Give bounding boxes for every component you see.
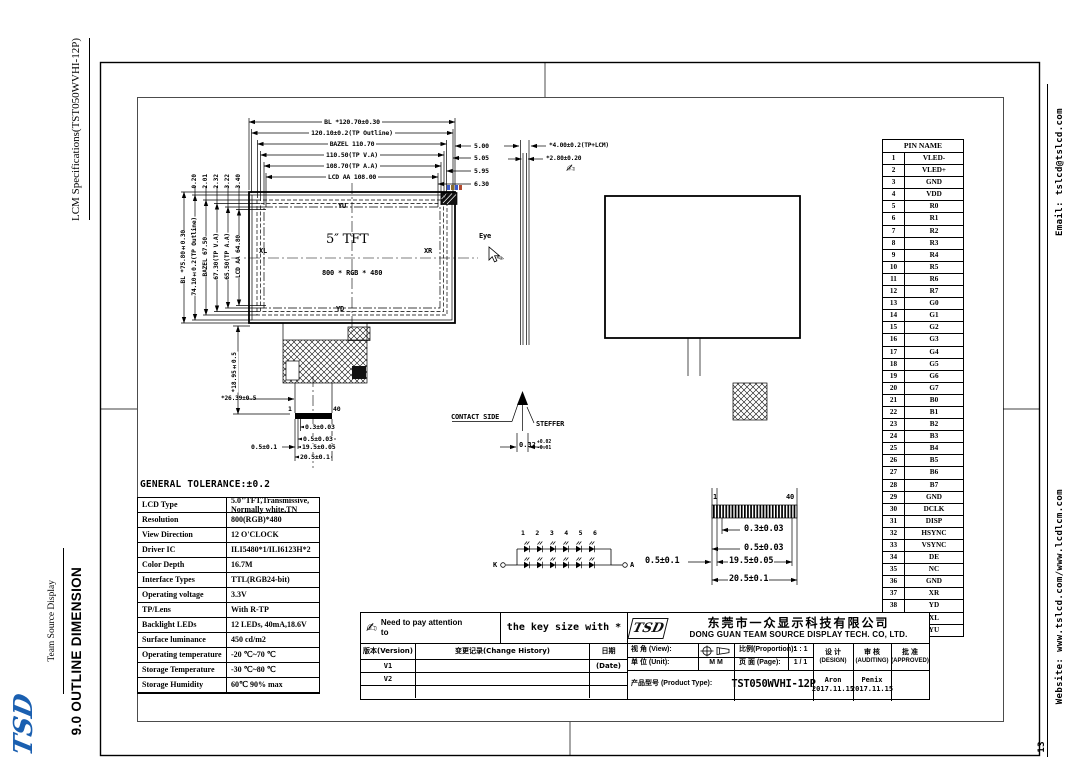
pin-name: B6 — [905, 467, 963, 478]
dim-top-6: LCD AA 108.00 — [252, 174, 452, 181]
spec-row: Operating temperature -20 ℃~70 ℃ — [138, 648, 319, 663]
pin-row: 3 GND — [883, 177, 963, 189]
spec-label: Operating temperature — [138, 648, 227, 662]
spec-value: 16.7M — [227, 558, 319, 572]
title-block-right: TSD 东莞市一众显示科技有限公司 DONG GUAN TEAM SOURCE … — [628, 613, 929, 699]
date-v2 — [590, 673, 627, 685]
company-row: TSD 东莞市一众显示科技有限公司 DONG GUAN TEAM SOURCE … — [628, 613, 929, 644]
product-value: TST050WVHI-12P — [734, 670, 813, 699]
led-cathode-label: K — [493, 562, 497, 570]
pin-row: 38 YD — [883, 600, 963, 612]
side-dim-total: *4.00±0.2(TP+LCM) — [549, 143, 609, 150]
pin-name: B0 — [905, 395, 963, 406]
pin-row: 8 R3 — [883, 238, 963, 250]
pin-number: 34 — [883, 552, 905, 563]
pin-row: 10 R5 — [883, 262, 963, 274]
dim-top-2: 120.10±0.2(TP Outline) — [252, 130, 452, 137]
fpc-pin40-label: 40 — [333, 406, 340, 413]
pin-row: 37 XR — [883, 588, 963, 600]
led-anode-label: A — [630, 562, 634, 570]
led-number: 1 — [521, 530, 525, 537]
title-block: ✍ Need to pay attention to the key size … — [360, 612, 930, 700]
contact-side-label: CONTACT SIDE — [451, 414, 499, 422]
pin-row: 11 R6 — [883, 274, 963, 286]
pin-row: 30 DCLK — [883, 504, 963, 516]
spec-value: 450 cd/m2 — [227, 633, 319, 647]
section-title-vertical: 9.0 OUTLINE DIMENSION — [64, 538, 90, 764]
pin-number: 3 — [883, 177, 905, 188]
led-number: 6 — [593, 530, 597, 537]
history-col-header: 变更记录(Change History) — [416, 644, 590, 659]
pin-row: 34 DE — [883, 552, 963, 564]
pin-row: 33 VSYNC — [883, 540, 963, 552]
pin-number: 4 — [883, 189, 905, 200]
pin-name: B5 — [905, 455, 963, 466]
pin-name: DE — [905, 552, 963, 563]
pin-row: 22 B1 — [883, 407, 963, 419]
product-label: 产品型号 (Product Type): — [628, 670, 737, 699]
pin-row: 4 VDD — [883, 189, 963, 201]
spec-value: TTL(RGB24-bit) — [227, 573, 319, 587]
detail-margin: 0.5±0.1 — [645, 557, 679, 566]
pin-number: 19 — [883, 371, 905, 382]
version-header-row: 版本(Version) 变更记录(Change History) 日期(Date… — [361, 644, 627, 660]
gap-top-2: 2.01 — [201, 154, 211, 188]
led-number: 3 — [550, 530, 554, 537]
page-number-wrap: 13 — [1036, 736, 1048, 758]
pin-name: B1 — [905, 407, 963, 418]
title-block-left: ✍ Need to pay attention to the key size … — [361, 613, 628, 699]
detail-pin1: 1 — [713, 494, 717, 502]
spec-value: -20 ℃~70 ℃ — [227, 648, 319, 662]
thickness-value: 0.32 — [519, 442, 536, 449]
dim-left-4: 67.30(TP V.A) — [212, 190, 222, 323]
pin-row: 32 HSYNC — [883, 528, 963, 540]
pin-name: GND — [905, 576, 963, 587]
unit-label: 单 位 (Unit): — [628, 657, 701, 670]
spec-row: Operating voltage 3.3V — [138, 588, 319, 603]
panel-size-label: 5″ TFT — [326, 233, 368, 246]
pin-row: 24 B3 — [883, 431, 963, 443]
pin-number: 17 — [883, 347, 905, 358]
detail-pinw: 0.5±0.03 — [744, 544, 783, 553]
spec-row: Backlight LEDs 12 LEDs, 40mA,18.6V — [138, 618, 319, 633]
led-circuit — [501, 542, 628, 569]
fpc-span-dim: 19.5±0.05 — [301, 444, 336, 451]
approve-label: 批 准 — [902, 649, 918, 657]
spec-row: Color Depth 16.7M — [138, 558, 319, 573]
tol-minus: -0.01 — [537, 446, 551, 452]
fpc-height-dim: *18.95±0.5 — [232, 352, 238, 393]
pin-name: HSYNC — [905, 528, 963, 539]
pin-name: G6 — [905, 371, 963, 382]
spec-row: View Direction 12 O'CLOCK — [138, 528, 319, 543]
spec-value: 3.3V — [227, 588, 319, 602]
pin-number: 26 — [883, 455, 905, 466]
brand-text: Team Source Display — [48, 580, 58, 662]
page-label: 页 面 (Page): — [736, 657, 791, 670]
pin-row: 23 B2 — [883, 419, 963, 431]
detail-span: 19.5±0.05 — [728, 557, 774, 566]
unit-value: M M — [698, 657, 734, 670]
spec-value: 12 LEDs, 40mA,18.6V — [227, 618, 319, 632]
dim-top-3: BAZEL 110.70 — [252, 141, 452, 148]
panel-label-yu: YU — [338, 203, 346, 211]
led-number: 2 — [535, 530, 539, 537]
spec-label: Resolution — [138, 513, 227, 527]
pin-name: VSYNC — [905, 540, 963, 551]
datasheet-page: { "page": { "number": "13" }, "sidebar_l… — [0, 0, 1088, 772]
dim-gap-4: 6.30 — [474, 181, 489, 188]
spec-row: Interface Types TTL(RGB24-bit) — [138, 573, 319, 588]
version-v1: V1 — [361, 660, 416, 672]
spec-table: LCD Type 5.0"TFT,Transmissive, Normally … — [137, 497, 320, 694]
version-row-v1: V1 — [361, 660, 627, 673]
date-empty — [590, 686, 627, 698]
pin-number: 10 — [883, 262, 905, 273]
spec-row: TP/Lens With R-TP — [138, 603, 319, 618]
pin-number: 24 — [883, 431, 905, 442]
spec-label: Backlight LEDs — [138, 618, 227, 632]
pin-number: 38 — [883, 600, 905, 611]
pin-row: 9 R4 — [883, 250, 963, 262]
pin-number: 28 — [883, 480, 905, 491]
audit-label: 审 核 — [864, 649, 880, 657]
pin-row: 27 B6 — [883, 467, 963, 479]
tsd-logo-text: TSD — [11, 692, 37, 758]
dim-left-1: BL *75.80±0.30 — [179, 190, 189, 323]
spec-value: 800(RGB)*480 — [227, 513, 319, 527]
side-dim-lcm: *2.80±0.20 — [546, 156, 581, 163]
attention-row: ✍ Need to pay attention to the key size … — [361, 613, 627, 644]
email-vertical: Email: tslcd@tslcd.com — [1052, 86, 1068, 258]
stiffener-label: STEFFER — [536, 421, 564, 429]
proportion-label: 比例(Proportion): — [736, 644, 791, 657]
attention-text: Need to pay attention to — [381, 618, 465, 638]
history-empty — [416, 686, 590, 698]
page-number: 13 — [1038, 741, 1047, 753]
pin-number: 5 — [883, 201, 905, 212]
pin-row: 2 VLED+ — [883, 165, 963, 177]
dim-left-3: BAZEL 67.50 — [201, 190, 211, 323]
pin-number: 12 — [883, 286, 905, 297]
company-names: 东莞市一众显示科技有限公司 DONG GUAN TEAM SOURCE DISP… — [668, 616, 929, 640]
pin-row: 18 G5 — [883, 359, 963, 371]
hand-note-icon: ✍ — [566, 162, 575, 175]
pin-name: R7 — [905, 286, 963, 297]
spec-value: -30 ℃~80 ℃ — [227, 663, 319, 677]
audit-sub: (AUDITING) — [856, 658, 889, 665]
key-note-text: the key size with * — [507, 623, 621, 633]
pin-name: DCLK — [905, 504, 963, 515]
thickness-tolerance: +0.02 -0.01 — [537, 440, 551, 451]
panel-resolution-label: 800 * RGB * 480 — [322, 270, 382, 278]
company-logo-text: TSD — [627, 618, 669, 639]
spec-label: Color Depth — [138, 558, 227, 572]
rear-view — [605, 196, 800, 420]
dim-left-6: LCD AA 64.80 — [234, 190, 244, 323]
dim-top-1: BL *120.70±0.30 — [252, 119, 452, 126]
spec-row: Storage Humidity 60℃ 90% max — [138, 678, 319, 693]
pin-name: B2 — [905, 419, 963, 430]
pin-name: YD — [905, 600, 963, 611]
spec-row: Storage Temperature -30 ℃~80 ℃ — [138, 663, 319, 678]
brand-vertical: Team Source Display — [45, 550, 61, 692]
fpc-total-dim: 20.5±0.1 — [299, 454, 331, 461]
pin-row: 25 B4 — [883, 443, 963, 455]
dim-top-4: 110.50(TP V.A) — [252, 152, 452, 159]
dim-left-2: 74.10±0.2(TP Outline) — [190, 190, 200, 323]
pin-row: 6 R1 — [883, 213, 963, 225]
spec-row: Driver IC ILI5480*1/ILI6123H*2 — [138, 543, 319, 558]
pin-table: PIN NAME 1 VLED- 2 VLED+ 3 GND 4 VDD 5 R… — [882, 139, 964, 637]
pin-name: R5 — [905, 262, 963, 273]
spec-label: View Direction — [138, 528, 227, 542]
pin-name: R2 — [905, 226, 963, 237]
gap-top-4: 3.22 — [223, 154, 233, 188]
audit-signature: Penix 2017.11.15 — [853, 670, 891, 699]
pin-number: 23 — [883, 419, 905, 430]
pin-name: GND — [905, 177, 963, 188]
pin-number: 8 — [883, 238, 905, 249]
pin-name: NC — [905, 564, 963, 575]
pin-row: 5 R0 — [883, 201, 963, 213]
fpc-height-dim-wrap: *18.95±0.5 — [230, 330, 240, 414]
pin-row: 13 G0 — [883, 298, 963, 310]
pin-number: 20 — [883, 383, 905, 394]
pin-number: 7 — [883, 226, 905, 237]
pin-row: 17 G4 — [883, 347, 963, 359]
spec-value: 5.0"TFT,Transmissive, Normally white,TN — [227, 498, 319, 512]
spec-label: Driver IC — [138, 543, 227, 557]
pin-number: 1 — [883, 153, 905, 164]
company-name-en: DONG GUAN TEAM SOURCE DISPLAY TECH. CO, … — [690, 630, 908, 640]
company-name-cn: 东莞市一众显示科技有限公司 — [707, 616, 889, 630]
design-sub: (DESIGN) — [820, 658, 847, 665]
spec-label: Storage Temperature — [138, 663, 227, 677]
spec-label: Operating voltage — [138, 588, 227, 602]
pin-number: 31 — [883, 516, 905, 527]
company-logo: TSD — [628, 618, 668, 639]
spec-label: Surface luminance — [138, 633, 227, 647]
pin-number: 35 — [883, 564, 905, 575]
pin-number: 2 — [883, 165, 905, 176]
pin-number: 15 — [883, 322, 905, 333]
email-text: Email: tslcd@tslcd.com — [1056, 108, 1065, 236]
key-note-cell: the key size with * — [501, 613, 627, 643]
pin-number: 30 — [883, 504, 905, 515]
gap-top-3: 2.32 — [212, 154, 222, 188]
pin-number: 6 — [883, 213, 905, 224]
audit-name: Penix — [861, 676, 882, 684]
design-header: 设 计 (DESIGN) — [813, 644, 853, 670]
spec-row: Surface luminance 450 cd/m2 — [138, 633, 319, 648]
panel-label-xr: XR — [424, 248, 432, 256]
spec-label: TP/Lens — [138, 603, 227, 617]
dim-gap-1: 5.00 — [474, 143, 489, 150]
pin-name: R3 — [905, 238, 963, 249]
detail-pitch: 0.3±0.03 — [744, 525, 783, 534]
pin-row: 19 G6 — [883, 371, 963, 383]
pin-number: 36 — [883, 576, 905, 587]
pin-name: R1 — [905, 213, 963, 224]
right-sidebar-rule — [1047, 84, 1048, 757]
pin-number: 27 — [883, 467, 905, 478]
gap-top-1: 0.20 — [190, 154, 200, 188]
audit-header: 审 核 (AUDITING) — [853, 644, 891, 670]
version-row-empty — [361, 686, 627, 698]
spec-value: 60℃ 90% max — [227, 678, 319, 692]
pin-number: 9 — [883, 250, 905, 261]
pin-name: G1 — [905, 310, 963, 321]
pin-row: 26 B5 — [883, 455, 963, 467]
pin-name: VLED- — [905, 153, 963, 164]
design-label: 设 计 — [825, 649, 841, 657]
pin-name: G4 — [905, 347, 963, 358]
projection-symbol — [698, 644, 734, 657]
pin-number: 25 — [883, 443, 905, 454]
approve-sub: (APPROVED) — [891, 658, 929, 665]
pin-name: VDD — [905, 189, 963, 200]
pin-name: G2 — [905, 322, 963, 333]
led-number: 5 — [579, 530, 583, 537]
pin-row: 36 GND — [883, 576, 963, 588]
spec-value: With R-TP — [227, 603, 319, 617]
pin-row: 20 G7 — [883, 383, 963, 395]
page-value: 1 / 1 — [788, 657, 813, 670]
pin-row: 14 G1 — [883, 310, 963, 322]
pin-name: R6 — [905, 274, 963, 285]
pin-name: B3 — [905, 431, 963, 442]
pin-row: 15 G2 — [883, 322, 963, 334]
fpc-margin-dim: 0.5±0.1 — [251, 444, 277, 451]
pin-row: 31 DISP — [883, 516, 963, 528]
pin-number: 33 — [883, 540, 905, 551]
pin-row: 12 R7 — [883, 286, 963, 298]
pin-number: 21 — [883, 395, 905, 406]
section-title: 9.0 OUTLINE DIMENSION — [70, 567, 84, 735]
spec-label: Interface Types — [138, 573, 227, 587]
pin-row: 21 B0 — [883, 395, 963, 407]
spec-label: LCD Type — [138, 498, 227, 512]
pin-number: 29 — [883, 492, 905, 503]
audit-date: 2017.11.15 — [851, 685, 893, 693]
pin-number: 13 — [883, 298, 905, 309]
tsd-logo: TSD — [2, 686, 46, 762]
gap-top-5: 3.40 — [234, 154, 244, 188]
dim-top-5: 108.70(TP A.A) — [252, 163, 452, 170]
history-v1 — [416, 660, 590, 672]
dim-left-5: 65.50(TP A.A) — [223, 190, 233, 323]
fpc-pin1-label: 1 — [288, 406, 292, 413]
pin-name: B4 — [905, 443, 963, 454]
corner-note-icon — [447, 185, 462, 190]
pin-name: VLED+ — [905, 165, 963, 176]
spec-value: 12 O'CLOCK — [227, 528, 319, 542]
pin-row: 29 GND — [883, 492, 963, 504]
pin-number: 11 — [883, 274, 905, 285]
side-view — [452, 140, 546, 452]
website-vertical: Website: www.tslcd.com/www.lcdlcm.com — [1052, 434, 1068, 760]
fpc-pinw-dim: 0.5±0.03 — [302, 436, 334, 443]
attention-cell: ✍ Need to pay attention to — [361, 613, 501, 643]
pin-name: XR — [905, 588, 963, 599]
pin-name: G5 — [905, 359, 963, 370]
pin-number: 18 — [883, 359, 905, 370]
detail-total: 20.5±0.1 — [728, 575, 769, 584]
pin-name: G7 — [905, 383, 963, 394]
pin-number: 32 — [883, 528, 905, 539]
design-signature: Aron 2017.11.15 — [813, 670, 853, 699]
general-tolerance-title: GENERAL TOLERANCE:±0.2 — [140, 480, 270, 490]
spec-label: Storage Humidity — [138, 678, 227, 692]
doc-title-underline — [89, 38, 90, 220]
pin-number: 22 — [883, 407, 905, 418]
version-col-header: 版本(Version) — [361, 644, 416, 659]
pin-row: 1 VLED- — [883, 153, 963, 165]
website-text: Website: www.tslcd.com/www.lcdlcm.com — [1056, 489, 1065, 704]
pin-row: 35 NC — [883, 564, 963, 576]
proportion-value: 1 : 1 — [788, 644, 813, 657]
date-col-header: 日期(Date) — [590, 644, 627, 659]
date-v1 — [590, 660, 627, 672]
design-name: Aron — [825, 676, 842, 684]
attention-hand-icon: ✍ — [366, 621, 377, 636]
pin-table-header: PIN NAME — [883, 140, 963, 153]
approve-signature — [891, 670, 929, 699]
document-title-vertical: LCM Specifications(TST050WVHI-12P) — [64, 36, 88, 222]
pin-name: GND — [905, 492, 963, 503]
thickness-dim: 0.32 +0.02 -0.01 — [519, 440, 551, 451]
pin-row: 16 G3 — [883, 334, 963, 346]
spec-value: ILI5480*1/ILI6123H*2 — [227, 543, 319, 557]
version-v2: V2 — [361, 673, 416, 685]
version-empty — [361, 686, 416, 698]
pin-name: G3 — [905, 334, 963, 345]
pin-row: 7 R2 — [883, 226, 963, 238]
dim-gap-3: 5.95 — [474, 168, 489, 175]
history-v2 — [416, 673, 590, 685]
document-title: LCM Specifications(TST050WVHI-12P) — [71, 38, 82, 221]
pin-number: 37 — [883, 588, 905, 599]
pin-number: 16 — [883, 334, 905, 345]
pin-name: B7 — [905, 480, 963, 491]
led-numbers: 123456 — [521, 530, 597, 537]
spec-row: Resolution 800(RGB)*480 — [138, 513, 319, 528]
pin-number: 14 — [883, 310, 905, 321]
fpc-pitch-dim: 0.3±0.03 — [304, 424, 336, 431]
eye-label: Eye — [479, 233, 491, 241]
detail-pin40: 40 — [786, 494, 794, 502]
spec-row: LCD Type 5.0"TFT,Transmissive, Normally … — [138, 498, 319, 513]
design-date: 2017.11.15 — [812, 685, 854, 693]
pin-name: G0 — [905, 298, 963, 309]
version-row-v2: V2 — [361, 673, 627, 686]
approve-header: 批 准 (APPROVED) — [891, 644, 929, 670]
pin-name: R0 — [905, 201, 963, 212]
third-angle-projection-icon — [700, 645, 732, 657]
pin-row: 28 B7 — [883, 480, 963, 492]
view-label: 视 角 (View): — [628, 644, 701, 657]
connector-detail-view — [688, 488, 797, 585]
pin-name: R4 — [905, 250, 963, 261]
pin-name: DISP — [905, 516, 963, 527]
panel-label-yd: YD — [336, 306, 344, 314]
led-number: 4 — [564, 530, 568, 537]
dim-gap-2: 5.05 — [474, 155, 489, 162]
panel-label-xl: XL — [259, 248, 267, 256]
